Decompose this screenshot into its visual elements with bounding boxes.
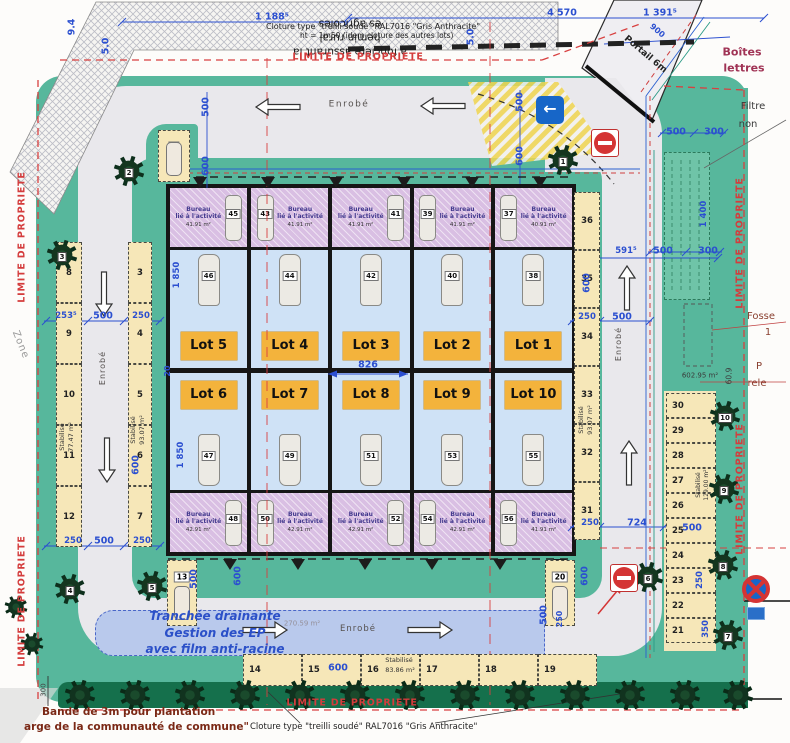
no-entry-disc — [613, 567, 635, 589]
stall-number: 16 — [367, 665, 379, 675]
stall-number: 23 — [672, 576, 684, 586]
office-label: Bureaulié à l'activité42.91 m² — [277, 511, 323, 535]
dim-label: 591⁵ — [615, 247, 636, 256]
van-icon: 41 — [387, 195, 404, 241]
tree-number: 2 — [125, 168, 134, 178]
lot-badge: Lot 9 — [424, 381, 480, 409]
dim-label: 250 — [578, 313, 596, 322]
lot-unit: Lot 851Bureaulié à l'activité42.91 m²52 — [332, 373, 409, 553]
text-label: Fosse — [747, 312, 775, 322]
van-parking-area: 44 — [251, 250, 328, 324]
fence-note-bottom: Cloture type "treilli soudé" RAL7016 "Gr… — [250, 722, 477, 732]
dim-label: 350 — [702, 620, 711, 638]
van-stall-number: 51 — [364, 451, 379, 461]
dim-label: 1 850 — [177, 442, 186, 469]
van-parking-area: 53 — [414, 417, 491, 491]
office-area: Bureaulié à l'activité42.91 m²48 — [170, 490, 247, 552]
dim-label: 1 400 — [700, 201, 709, 228]
parking-stall: 3 — [128, 242, 152, 303]
dim-label: 600 — [582, 273, 592, 293]
tree-number: 6 — [644, 574, 653, 584]
dim-label: 5.0 — [466, 29, 476, 46]
stall-number: 9 — [66, 329, 72, 339]
van-icon: 54 — [419, 500, 436, 546]
tree-icon — [614, 679, 646, 715]
van-icon: 38 — [522, 254, 544, 306]
lot-unit: 37Bureaulié à l'activité40.91 m²38Lot 1 — [495, 188, 572, 368]
dim-label: 20 — [164, 365, 172, 376]
tree-number: 10 — [718, 413, 732, 423]
parking-stall: 28 — [666, 443, 716, 468]
stall-number: 7 — [137, 512, 143, 522]
office-stall-number: 41 — [388, 209, 403, 219]
no-stopping-sign-icon — [742, 575, 770, 603]
office-area: 56Bureaulié à l'activité41.91 m² — [495, 490, 572, 552]
lot-label-area: Lot 5 — [170, 324, 247, 368]
lot-badge: Lot 1 — [505, 332, 561, 360]
tree-number: 9 — [720, 486, 729, 496]
text-label: P — [756, 362, 762, 372]
office-label: Bureaulié à l'activité40.91 m² — [521, 206, 567, 230]
limite-propriete-label: LIMITE DE PROPRIETE — [292, 52, 423, 62]
tree-icon — [669, 679, 701, 715]
van-icon: 50 — [257, 500, 274, 546]
van-icon: 44 — [279, 254, 301, 306]
dim-label: 5.0 — [101, 38, 111, 55]
limite-propriete-label: LIMITE DE PROPRIETE — [735, 423, 745, 554]
stall-number: 11 — [63, 451, 75, 461]
office-area-value: 42.91 m² — [338, 527, 384, 534]
dim-label: 83.86 m² — [385, 667, 415, 674]
stall-number: 33 — [581, 390, 593, 400]
van-stall-number: 40 — [445, 271, 460, 281]
dim-label: 250 — [64, 537, 82, 546]
lot-badge: Lot 7 — [262, 381, 318, 409]
van-icon: 45 — [225, 195, 242, 241]
stall-number: 20 — [552, 572, 568, 583]
tree-icon: 7 — [712, 619, 744, 655]
office-area-value: 42.91 m² — [277, 527, 323, 534]
parking-stall: 10 — [56, 364, 82, 425]
stall-number: 22 — [672, 601, 684, 611]
fence-note-top-line2: ht = 1m50 (idem cloture des autres lots) — [266, 31, 480, 40]
office-label: Bureaulié à l'activité41.91 m² — [175, 206, 221, 230]
no-entry-sign-icon — [610, 564, 638, 592]
stall-number: 4 — [137, 329, 143, 339]
dim-label: 600 — [233, 566, 243, 586]
lot-label-area: Lot 1 — [495, 324, 572, 368]
office-stall-number: 48 — [226, 514, 241, 524]
office-area-value: 42.91 m² — [440, 527, 486, 534]
lot-label-area: Lot 6 — [170, 373, 247, 417]
text-label: Zone — [10, 329, 30, 360]
dim-label: 600 — [131, 455, 141, 475]
dim-label: 9.4 — [67, 19, 77, 36]
dim-label: 500 — [201, 97, 211, 117]
parking-stall: 1 — [158, 130, 190, 182]
van-icon: 46 — [198, 254, 220, 306]
office-area-value: 41.91 m² — [338, 222, 384, 229]
dim-label: 250 — [556, 611, 564, 628]
lot-badge: Lot 6 — [181, 381, 237, 409]
lot-badge: Lot 3 — [343, 332, 399, 360]
office-area: Bureaulié à l'activité42.91 m²52 — [332, 490, 409, 552]
office-stall-number: 39 — [420, 209, 435, 219]
dim-label: 500 — [94, 536, 114, 546]
office-area-value: 41.91 m² — [175, 222, 221, 229]
van-icon: 51 — [360, 434, 382, 486]
van-icon: 39 — [419, 195, 436, 241]
van-stall-number: 38 — [526, 271, 541, 281]
text-label: non — [739, 120, 758, 130]
lot-unit: Lot 95354Bureaulié à l'activité42.91 m² — [414, 373, 491, 553]
lot-badge: Lot 2 — [424, 332, 480, 360]
dim-label: 93.07 m² — [587, 405, 594, 435]
lot-unit: 43Bureaulié à l'activité41.91 m²44Lot 4 — [251, 188, 328, 368]
office-area-value: 41.91 m² — [440, 222, 486, 229]
stall-number: 31 — [581, 506, 593, 516]
site-plan: Bureaulié à l'activité41.91 m²4546Lot 54… — [0, 0, 790, 743]
parking-stall: 31 — [574, 482, 600, 540]
car-icon — [166, 142, 182, 176]
stall-number: 15 — [308, 665, 320, 675]
no-entry-sign-icon — [591, 129, 619, 157]
dim-label: 600 — [328, 663, 348, 673]
tree-number: 7 — [724, 632, 733, 642]
limite-propriete-label: LIMITE DE PROPRIETE — [17, 171, 27, 302]
text-label: Stabilisé — [385, 657, 413, 664]
limite-propriete-label: LIMITE DE PROPRIETE — [286, 698, 417, 708]
office-stall-number: 37 — [501, 209, 516, 219]
dim-label: 129.00 m² — [704, 469, 710, 500]
dim-label: 900 — [648, 23, 666, 40]
van-parking-area: 40 — [414, 250, 491, 324]
dim-label: 1 188⁵ — [255, 12, 289, 22]
dim-label: 826 — [358, 360, 378, 370]
van-icon: 55 — [522, 434, 544, 486]
stall-number: 14 — [249, 665, 261, 675]
dim-label: 500 — [653, 246, 673, 256]
office-area-value: 40.91 m² — [521, 222, 567, 229]
office-label: Bureaulié à l'activité41.91 m² — [521, 511, 567, 535]
lot-unit: 39Bureaulié à l'activité41.91 m²40Lot 2 — [414, 188, 491, 368]
lot-unit: Lot 105556Bureaulié à l'activité41.91 m² — [495, 373, 572, 553]
office-area-value: 42.91 m² — [175, 527, 221, 534]
lot-label-area: Lot 4 — [251, 324, 328, 368]
text-label: Stabilisé — [578, 406, 585, 434]
text-label: Boîtes — [723, 47, 762, 58]
stall-number: 12 — [63, 512, 75, 522]
tree-number: 3 — [58, 252, 67, 262]
dim-label: 724 — [627, 518, 647, 528]
office-area: 50Bureaulié à l'activité42.91 m² — [251, 490, 328, 552]
stall-number: 27 — [672, 476, 684, 486]
lot-label-area: Lot 9 — [414, 373, 491, 417]
stall-number: 3 — [137, 268, 143, 278]
stall-number: 30 — [672, 401, 684, 411]
van-stall-number: 49 — [282, 451, 297, 461]
building-row-north: Bureaulié à l'activité41.91 m²4546Lot 54… — [170, 188, 572, 368]
no-entry-disc — [594, 132, 616, 154]
tree-icon: 2 — [113, 155, 145, 191]
lot-badge: Lot 10 — [505, 381, 561, 409]
lot-unit: Lot 74950Bureaulié à l'activité42.91 m² — [251, 373, 328, 553]
text-label: Portail 6m — [622, 35, 668, 76]
office-stall-number: 50 — [258, 514, 273, 524]
plantation-note-line1: Bande de 3m pour plantation — [24, 705, 249, 720]
van-icon: 49 — [279, 434, 301, 486]
office-label: Bureaulié à l'activité42.91 m² — [175, 511, 221, 535]
stall-number: 10 — [63, 390, 75, 400]
text-label: Stabilisé — [130, 416, 137, 444]
dim-label: 1 — [765, 328, 771, 338]
dim-label: 250 — [132, 312, 150, 321]
limite-propriete-label: LIMITE DE PROPRIETE — [17, 535, 27, 666]
stall-number: 21 — [672, 626, 684, 636]
office-area: Bureaulié à l'activité41.91 m²45 — [170, 188, 247, 250]
dim-label: 600 — [201, 156, 211, 176]
text-label: Stabilisé — [696, 472, 702, 497]
office-label: Bureaulié à l'activité41.91 m² — [440, 206, 486, 230]
building-row-south: Lot 647Bureaulié à l'activité42.91 m²48L… — [170, 373, 572, 553]
office-area: 43Bureaulié à l'activité41.91 m² — [251, 188, 328, 250]
sign-plaque — [747, 607, 765, 620]
tree-number: 4 — [66, 586, 75, 596]
dim-label: 1 850 — [173, 262, 182, 289]
dim-label: 300 — [704, 127, 724, 137]
lot-badge: Lot 5 — [181, 332, 237, 360]
van-icon: 42 — [360, 254, 382, 306]
office-label: Bureaulié à l'activité42.91 m² — [338, 511, 384, 535]
van-stall-number: 46 — [201, 271, 216, 281]
plantation-note: Bande de 3m pour plantation arge de la c… — [24, 705, 249, 735]
stall-number: 24 — [672, 551, 684, 561]
dim-label: 600 — [515, 146, 525, 166]
stall-number: 29 — [672, 426, 684, 436]
dim-label: 300 — [41, 683, 48, 696]
office-area: Bureaulié à l'activité41.91 m²41 — [332, 188, 409, 250]
limite-propriete-label: LIMITE DE PROPRIETE — [735, 177, 745, 308]
dim-label: 270.59 m² — [284, 621, 320, 628]
office-stall-number: 52 — [388, 514, 403, 524]
office-label: Bureaulié à l'activité42.91 m² — [440, 511, 486, 535]
tree-icon — [559, 679, 591, 715]
van-icon: 47 — [198, 434, 220, 486]
text-label: Enrobé — [329, 101, 370, 110]
van-icon: 52 — [387, 500, 404, 546]
dim-label: 500 — [189, 569, 199, 589]
tree-icon — [504, 679, 536, 715]
van-icon: 43 — [257, 195, 274, 241]
dim-label: 600 — [580, 566, 590, 586]
lot-label-area: Lot 7 — [251, 373, 328, 417]
text-label: Enrobé — [340, 625, 376, 634]
trench-note: Tranchée drainante Gestion des EP avec f… — [110, 608, 320, 658]
office-area-value: 41.91 m² — [521, 527, 567, 534]
parking-stall: 22 — [666, 593, 716, 618]
van-parking-area: 49 — [251, 417, 328, 491]
dim-label: 300 — [698, 246, 718, 256]
lot-badge: Lot 4 — [262, 332, 318, 360]
tree-number: 8 — [719, 562, 728, 572]
lot-unit: Bureaulié à l'activité41.91 m²4142Lot 3 — [332, 188, 409, 368]
tree-icon: 3 — [46, 239, 78, 275]
lot-label-area: Lot 8 — [332, 373, 409, 417]
dim-label: 4 570 — [547, 8, 577, 18]
fence-note-top-line1: Cloture type "treilli soudé" RAL7016 "Gr… — [266, 22, 480, 31]
dim-label: 250 — [581, 519, 599, 528]
tree-icon: 5 — [136, 570, 168, 606]
van-parking-area: 38 — [495, 250, 572, 324]
dim-label: 500 — [682, 523, 702, 533]
van-icon: 48 — [225, 500, 242, 546]
dim-label: 500 — [666, 127, 686, 137]
office-area: 39Bureaulié à l'activité41.91 m² — [414, 188, 491, 250]
office-stall-number: 43 — [258, 209, 273, 219]
stall-number: 32 — [581, 448, 593, 458]
trench-note-line3: avec film anti-racine — [110, 641, 320, 658]
tree-icon: 4 — [54, 573, 86, 609]
text-label: Filtre — [741, 102, 766, 112]
parking-stall: 36 — [574, 192, 600, 250]
office-area: 54Bureaulié à l'activité42.91 m² — [414, 490, 491, 552]
van-parking-area: 55 — [495, 417, 572, 491]
dim-label: 250 — [696, 571, 705, 589]
text-label: Enrobé — [615, 327, 623, 361]
text-label: Stabilisé — [59, 423, 66, 451]
van-icon: 56 — [500, 500, 517, 546]
van-stall-number: 47 — [201, 451, 216, 461]
stall-number: 17 — [426, 665, 438, 675]
plantation-note-line2: arge de la communauté de commune" — [24, 720, 249, 735]
dim-label: 250 — [133, 537, 151, 546]
office-stall-number: 45 — [226, 209, 241, 219]
van-stall-number: 44 — [282, 271, 297, 281]
stall-number: 18 — [485, 665, 497, 675]
turn-left-sign-icon: ← — [536, 96, 564, 124]
stall-number: 36 — [581, 216, 593, 226]
dim-label: 500 — [612, 312, 632, 322]
tree-number: 1 — [559, 157, 568, 167]
office-label: Bureaulié à l'activité41.91 m² — [277, 206, 323, 230]
stall-number: 19 — [544, 665, 556, 675]
text-label: rele — [748, 379, 767, 389]
dim-label: 500 — [515, 92, 525, 112]
tree-number: 5 — [148, 583, 157, 593]
office-area-value: 41.91 m² — [277, 222, 323, 229]
van-parking-area: 42 — [332, 250, 409, 324]
van-icon: 37 — [500, 195, 517, 241]
stall-number: 34 — [581, 332, 593, 342]
dim-label: 60.9 — [725, 368, 733, 385]
tree-icon — [449, 679, 481, 715]
stall-number: 5 — [137, 390, 143, 400]
text-label: Enrobé — [99, 351, 107, 385]
office-stall-number: 56 — [501, 514, 516, 524]
lot-label-area: Lot 10 — [495, 373, 572, 417]
fence-note-top: Cloture type "treilli soudé" RAL7016 "Gr… — [266, 22, 480, 40]
van-icon: 40 — [441, 254, 463, 306]
dim-label: 77.47 m² — [68, 422, 75, 452]
lot-label-area: Lot 2 — [414, 324, 491, 368]
van-stall-number: 42 — [364, 271, 379, 281]
van-parking-area: 51 — [332, 417, 409, 491]
dim-label: 1 391⁵ — [643, 8, 677, 18]
van-icon: 53 — [441, 434, 463, 486]
text-label: lettres — [723, 63, 764, 74]
van-stall-number: 55 — [526, 451, 541, 461]
dim-label: 253⁵ — [55, 312, 76, 321]
lot-badge: Lot 8 — [343, 381, 399, 409]
van-stall-number: 53 — [445, 451, 460, 461]
tree-icon — [722, 679, 754, 715]
dim-label: 93.07 m² — [139, 415, 146, 445]
office-stall-number: 54 — [420, 514, 435, 524]
stall-number: 26 — [672, 501, 684, 511]
office-area: 37Bureaulié à l'activité40.91 m² — [495, 188, 572, 250]
office-label: Bureaulié à l'activité41.91 m² — [338, 206, 384, 230]
tree-icon: 1 — [547, 144, 579, 180]
stall-number: 28 — [672, 451, 684, 461]
dim-label: 500 — [93, 311, 113, 321]
dim-label: 602.95 m² — [682, 373, 718, 380]
dim-label: 500 — [539, 605, 549, 625]
